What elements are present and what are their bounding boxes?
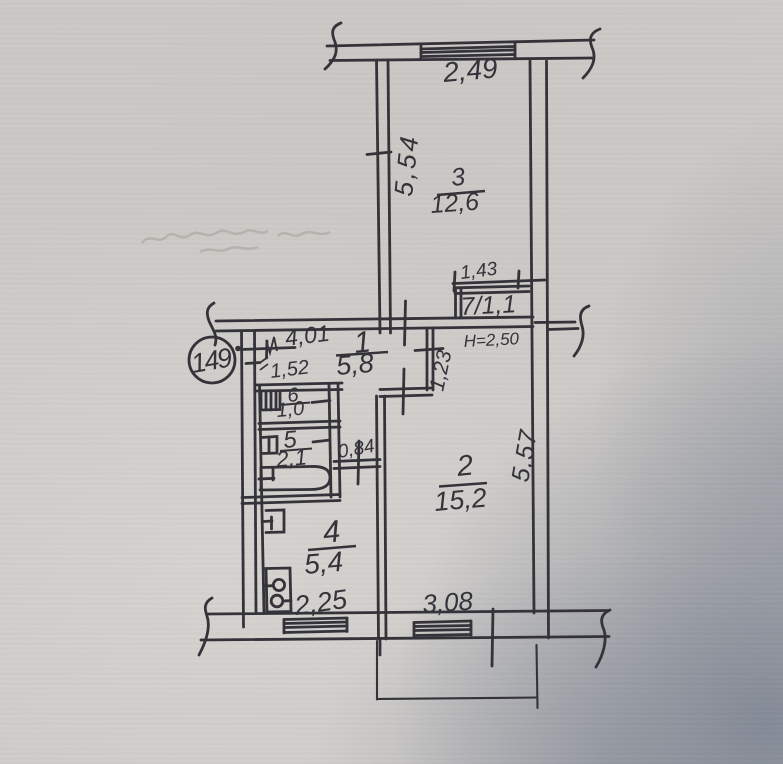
svg-text:5,8: 5,8 bbox=[335, 348, 375, 381]
svg-text:3: 3 bbox=[450, 163, 467, 192]
svg-text:2,1: 2,1 bbox=[274, 444, 308, 472]
svg-text:15,2: 15,2 bbox=[433, 483, 488, 517]
svg-text:1,52: 1,52 bbox=[269, 356, 310, 383]
svg-text:149: 149 bbox=[189, 342, 235, 379]
svg-text:2,25: 2,25 bbox=[292, 584, 350, 621]
svg-text:2: 2 bbox=[454, 449, 474, 483]
svg-text:H=2,50: H=2,50 bbox=[463, 329, 520, 351]
svg-text:3,08: 3,08 bbox=[421, 585, 474, 618]
svg-text:7/1,1: 7/1,1 bbox=[460, 290, 517, 321]
svg-text:2,49: 2,49 bbox=[441, 52, 499, 88]
svg-text:1,23: 1,23 bbox=[425, 348, 456, 393]
svg-text:12,6: 12,6 bbox=[429, 188, 480, 219]
svg-text:5,54: 5,54 bbox=[388, 132, 424, 197]
svg-text:4,01: 4,01 bbox=[283, 320, 331, 351]
svg-text:5,4: 5,4 bbox=[303, 546, 344, 580]
svg-text:5,57: 5,57 bbox=[506, 427, 543, 484]
svg-text:1,0: 1,0 bbox=[276, 398, 306, 422]
svg-text:1,43: 1,43 bbox=[459, 259, 499, 284]
svg-text:4: 4 bbox=[321, 513, 342, 550]
